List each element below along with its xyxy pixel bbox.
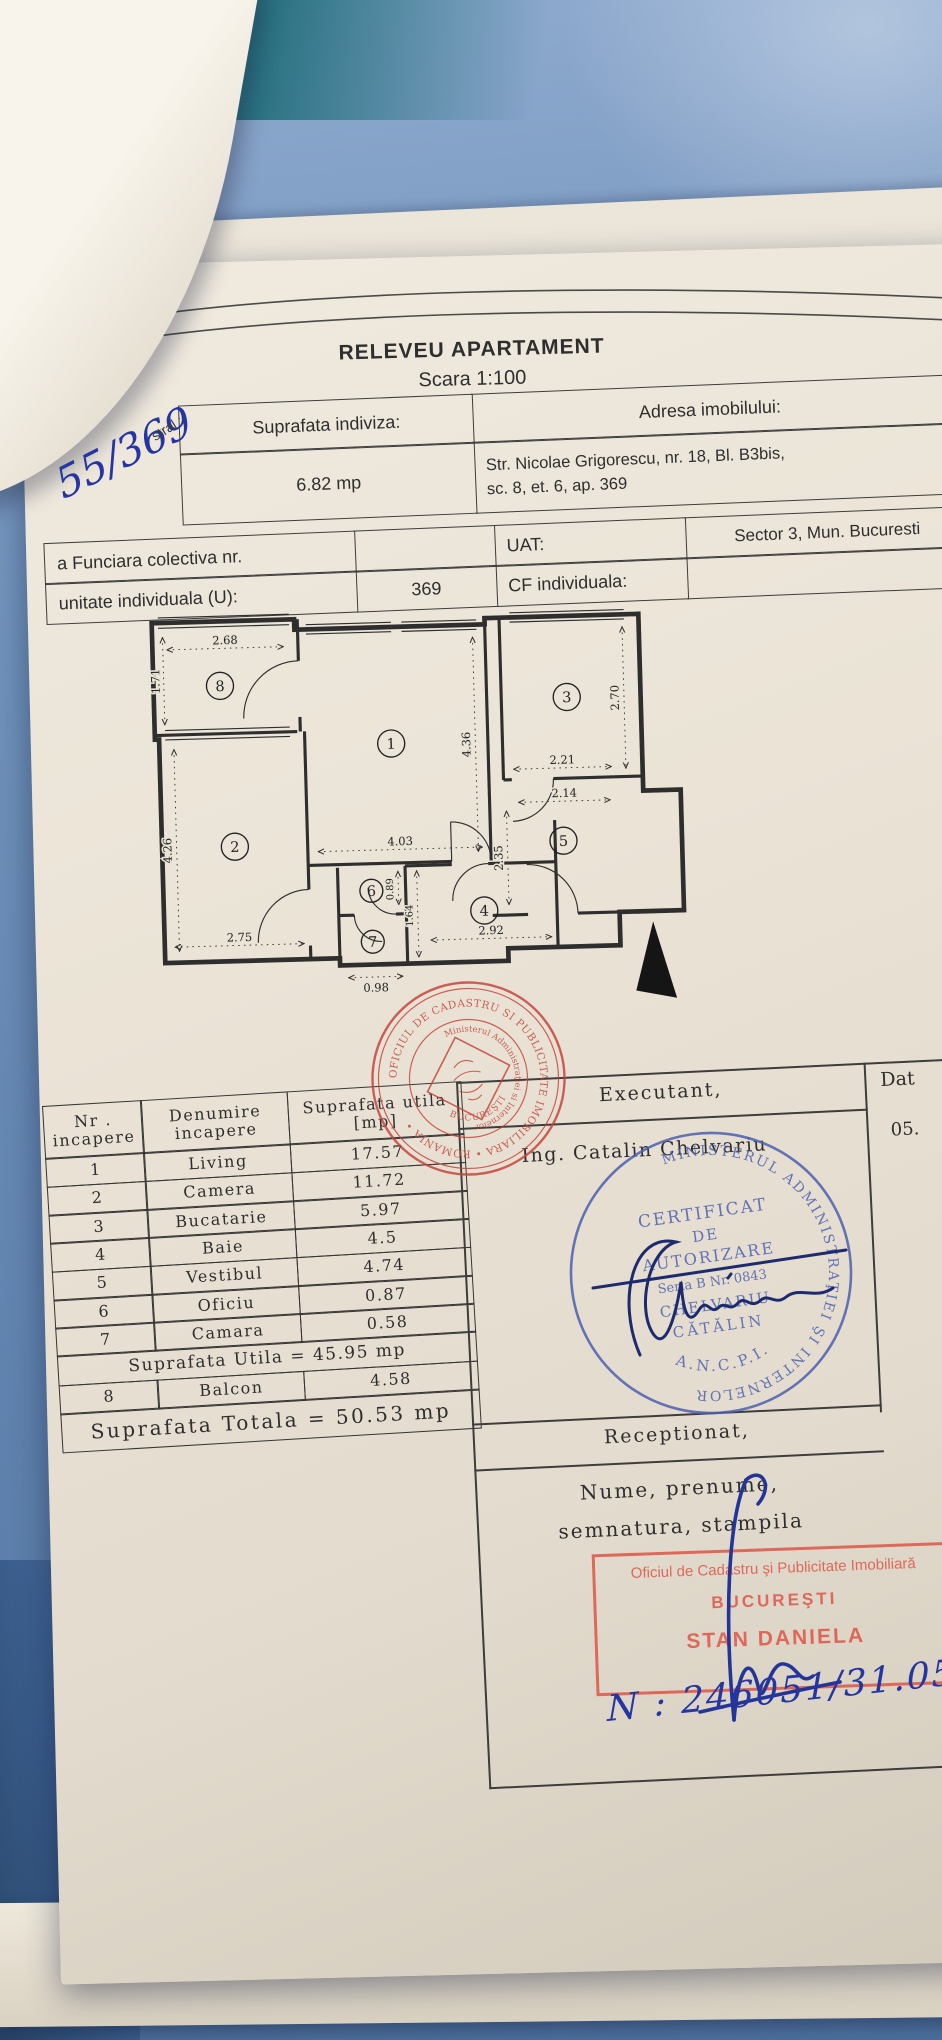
room-7: 7 — [368, 934, 378, 951]
dim-living-w: 4.03 — [387, 834, 413, 849]
photo-scene: RELEVEU APARTAMENT Scara 1:100 Suprafata… — [0, 0, 942, 2040]
room-1: 1 — [386, 736, 396, 753]
plan-room-number-labels: 8 1 3 2 5 6 4 7 — [215, 668, 578, 955]
room-4: 4 — [479, 903, 489, 920]
room-3: 3 — [562, 689, 572, 706]
rooms-header-nr-l2: incapere — [52, 1128, 136, 1151]
room-5: 5 — [559, 833, 569, 850]
dim-hol-w: 2.14 — [551, 786, 577, 801]
dim-camara-w: 0.98 — [363, 980, 389, 995]
title-block: RELEVEU APARTAMENT Scara 1:100 — [271, 333, 672, 396]
room-2: 2 — [230, 839, 240, 856]
dim-oficiu-h: 0.89 — [385, 878, 397, 900]
dim-living-h: 4.36 — [459, 732, 474, 758]
data-value: 05. — [890, 1118, 920, 1140]
dim-baie-w: 2.92 — [478, 923, 504, 938]
dim-camera-h: 4.26 — [160, 838, 175, 864]
floor-plan: 2.68 1.71 4.36 4.03 2.70 2.21 2.14 2.35 … — [132, 587, 788, 1021]
dim-bucatarie-w: 2.21 — [549, 752, 575, 767]
plan-walls — [152, 603, 686, 970]
room-8: 8 — [215, 678, 225, 695]
data-column-header: Dat — [880, 1067, 915, 1091]
room-6: 6 — [367, 883, 377, 900]
executant-signature — [578, 1150, 868, 1410]
dim-vestibul-h: 2.35 — [491, 845, 506, 871]
dim-balcon-w: 2.68 — [212, 633, 238, 648]
rooms-header-nr: Nr . incapere — [42, 1100, 145, 1160]
north-arrow — [634, 921, 677, 999]
door-arcs — [242, 653, 578, 945]
dim-bucatarie-h: 2.70 — [607, 685, 622, 711]
plan-dimensions — [162, 625, 631, 983]
dim-baie-h: 1.64 — [404, 905, 416, 927]
suprafata-indiviza-value: 6.82 mp — [180, 442, 478, 526]
rooms-header-denumire-l2: incapere — [170, 1120, 263, 1144]
dim-balcon-h: 1.71 — [148, 669, 163, 695]
dim-camera-w: 2.75 — [227, 930, 253, 945]
